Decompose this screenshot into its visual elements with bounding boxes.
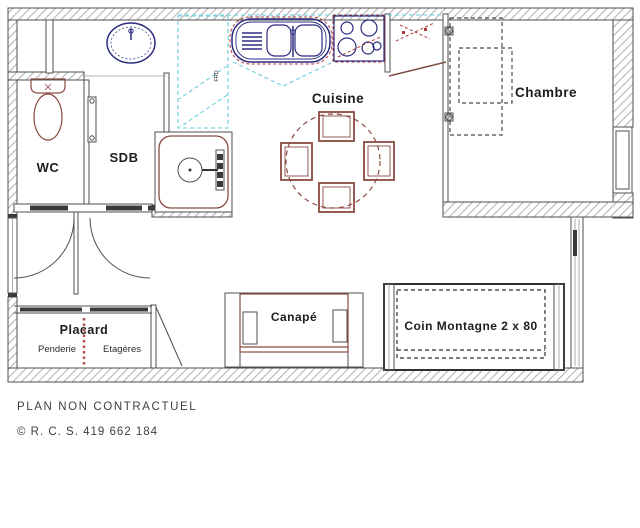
dining-table (286, 114, 380, 208)
kitchen: FRD (178, 15, 443, 128)
plan-disclaimer: PLAN NON CONTRACTUEL (17, 401, 197, 413)
sink-bowl-right (295, 25, 322, 56)
door-swing-right (90, 218, 150, 278)
wall-right-upper (613, 20, 633, 127)
sofa (225, 293, 363, 367)
wall-entry-closet (46, 20, 53, 73)
window-bay-right (571, 217, 583, 368)
label-canape: Canapé (271, 310, 317, 324)
window-chambre-right (613, 127, 632, 193)
wall-hall-stub (74, 212, 78, 294)
label-placard: Placard (60, 323, 109, 337)
label-chambre: Chambre (515, 85, 577, 100)
chair-bottom (319, 183, 354, 212)
toilet-bowl (34, 94, 62, 140)
wc-fixtures (31, 79, 65, 140)
chambre-furniture (445, 18, 512, 135)
kitchen-sink (230, 17, 332, 64)
sofa-arm-right (348, 293, 363, 367)
label-coin-montagne: Coin Montagne 2 x 80 (404, 319, 537, 333)
sdb-fixtures (88, 23, 232, 212)
wall-chambre-left (443, 14, 448, 202)
door-leaf-chambre (389, 62, 446, 76)
plan-copyright: © R. C. S. 419 662 184 (17, 426, 158, 438)
label-wc: WC (37, 160, 60, 175)
wall-kitchen-right (385, 14, 390, 72)
placard-sliding-door-1 (20, 308, 82, 312)
window-left (8, 214, 17, 297)
label-penderie: Penderie (38, 344, 76, 355)
bed-table (459, 48, 512, 103)
label-sdb: SDB (110, 150, 139, 165)
sink-drainer (242, 33, 262, 49)
floor-plan-drawing: FRD (0, 0, 640, 528)
wall-mid-right (443, 202, 633, 217)
wall-left-upper (8, 20, 17, 218)
shower (155, 132, 232, 212)
chair-top (319, 112, 354, 141)
washbasin (107, 23, 155, 63)
sdb-door-leaf (88, 97, 96, 142)
door-leaf-1 (30, 206, 68, 211)
wall-left-lower (8, 297, 17, 368)
floor-plan-page: FRD (0, 0, 640, 528)
placard-sliding-door-2 (90, 308, 148, 312)
stove (333, 15, 385, 62)
door-swing-left (14, 218, 74, 278)
toilet-cistern (31, 79, 65, 93)
door-leaf-2 (106, 206, 142, 211)
fold-away-bed (450, 18, 502, 135)
dining-set (281, 112, 394, 212)
placard-corner-diagonal (156, 307, 182, 366)
label-etageres: Etagères (103, 344, 141, 355)
kitchen-code-label: FRD (214, 70, 220, 81)
sofa-cushion-right (333, 310, 347, 342)
sofa-arm-left (225, 293, 240, 367)
label-cuisine: Cuisine (312, 91, 364, 106)
wall-top (8, 8, 633, 20)
appliance-cross-mark (396, 23, 434, 41)
wall-sdb-right (164, 73, 169, 133)
sofa-cushion-left (243, 312, 257, 344)
chair-right (364, 142, 394, 180)
wall-placard-right (151, 305, 156, 368)
sink-bowl-left (267, 25, 291, 56)
